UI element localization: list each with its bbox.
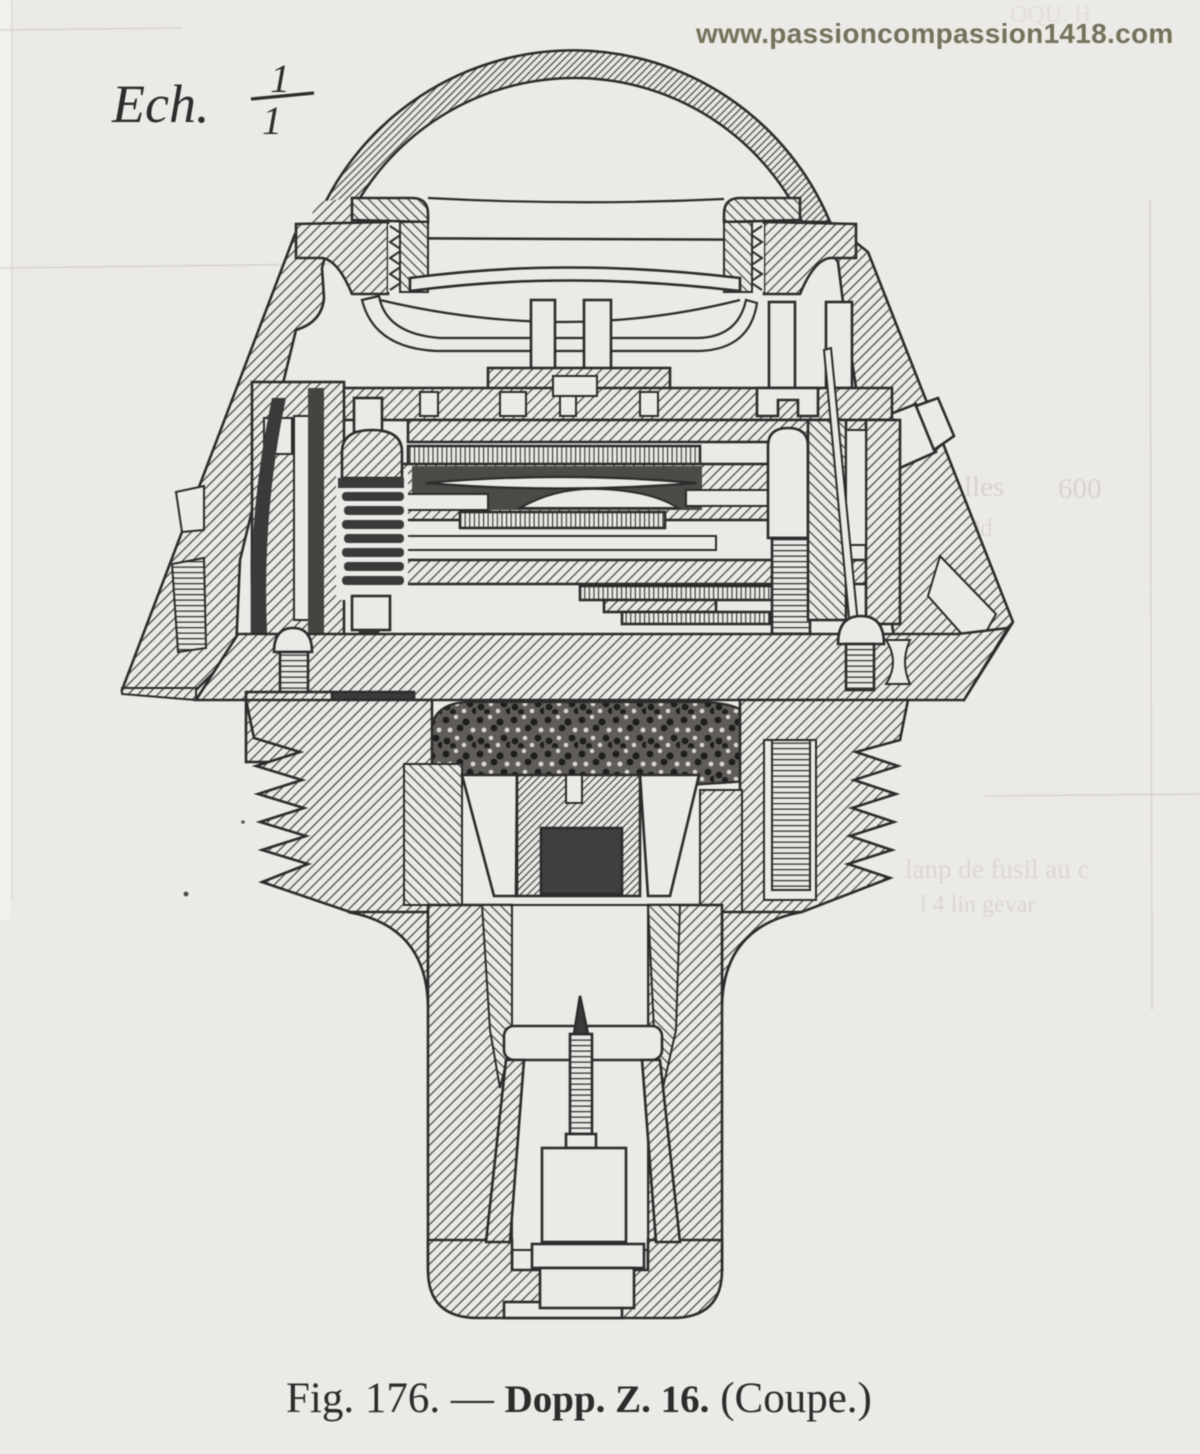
svg-text:lanp de fusil au c: lanp de fusil au c [905,854,1089,884]
svg-text:www.passioncompassion1418.com: www.passioncompassion1418.com [695,18,1174,49]
svg-text:1: 1 [262,98,282,143]
svg-text:Ech.: Ech. [111,74,209,134]
svg-text:600: 600 [1058,473,1102,505]
svg-text:Fig. 176. — Dopp. Z. 16. (Coup: Fig. 176. — Dopp. Z. 16. (Coupe.) [286,1375,872,1422]
svg-text:l 4 lin gevar: l 4 lin gevar [920,892,1035,918]
